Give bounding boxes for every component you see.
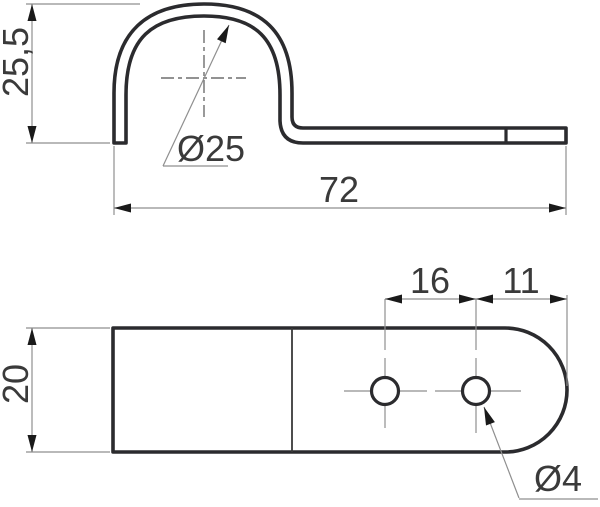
dim-length-label: 72 [319, 169, 359, 210]
dim-end-arrowhead-left [476, 295, 493, 304]
dim-width-arrowhead-top [28, 328, 37, 345]
dim-width-arrowhead-bottom [28, 435, 37, 452]
dim-length-arrowhead-right [549, 204, 566, 213]
dim-hole-spacing-arrowhead-left [385, 295, 402, 304]
dim-height-label: 25,5 [0, 27, 36, 97]
dim-pipe-diameter-arrowhead [217, 25, 229, 43]
dim-height-arrowhead-top [28, 4, 37, 21]
dim-end-offset-label: 11 [502, 260, 539, 301]
hole-left-circle [372, 378, 399, 405]
drawing-sheet: 25,5 Ø25 72 [0, 0, 600, 507]
dim-hole-diameter: Ø4 [484, 407, 598, 499]
dim-hole-spacing-label: 16 [410, 260, 450, 301]
dim-pipe-diameter-label: Ø25 [177, 128, 245, 169]
hole-left [344, 358, 427, 428]
plan-view: 16 11 20 Ø4 [0, 260, 598, 499]
dim-width-label: 20 [0, 364, 36, 404]
dim-height: 25,5 [0, 4, 140, 143]
side-view: 25,5 Ø25 72 [0, 4, 566, 215]
hole-right-circle [463, 378, 490, 405]
dim-hole-diameter-arrowhead [484, 407, 495, 426]
hole-right [435, 358, 521, 433]
dim-hole-spacing-arrowhead-right [459, 295, 476, 304]
dim-hole-diameter-label: Ø4 [534, 458, 582, 499]
dim-end-arrowhead-right [550, 295, 567, 304]
dim-height-arrowhead-bottom [28, 126, 37, 143]
clip-profile-outline [114, 4, 566, 143]
strap-outline [113, 328, 567, 452]
technical-drawing-canvas: 25,5 Ø25 72 [0, 0, 600, 507]
dim-length-arrowhead-left [114, 204, 131, 213]
dim-width: 20 [0, 328, 110, 452]
